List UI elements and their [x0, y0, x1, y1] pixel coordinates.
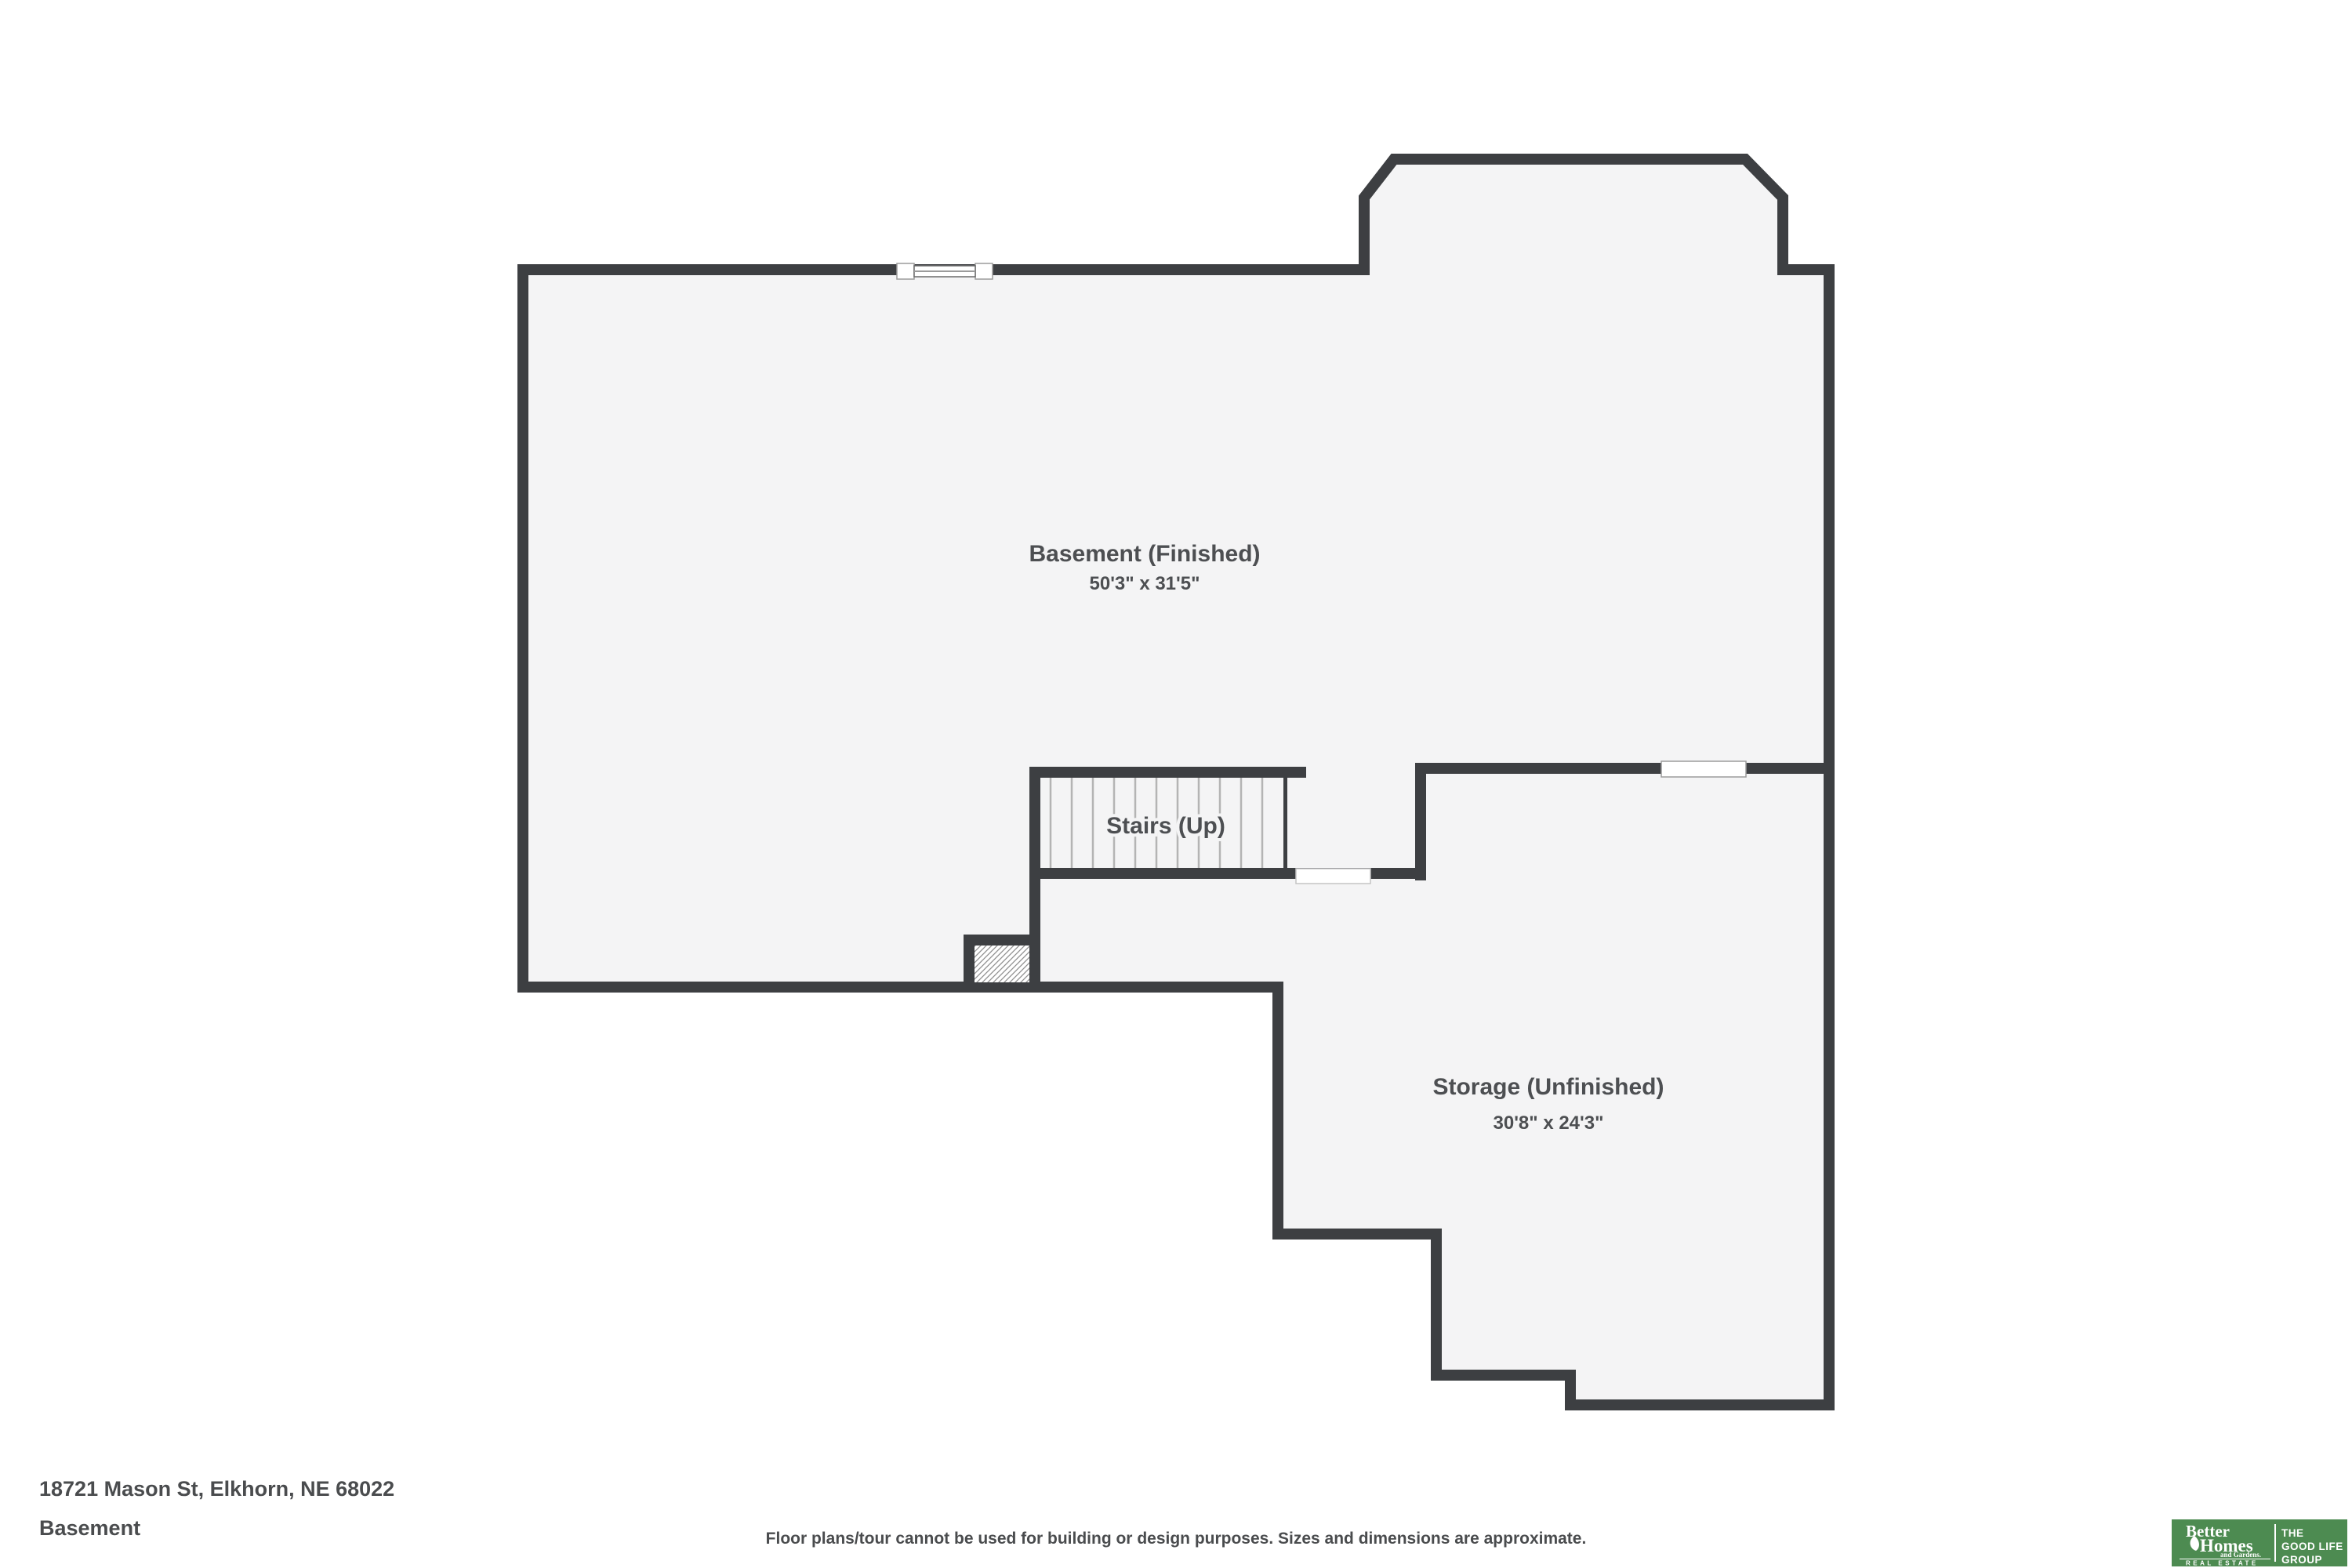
logo-tag-group: GROUP	[2281, 1554, 2322, 1566]
room-dims-storage: 30'8" x 24'3"	[1494, 1112, 1604, 1134]
room-label-storage: Storage (Unfinished)	[1432, 1074, 1664, 1100]
room-label-basement: Basement (Finished)	[1029, 541, 1260, 567]
support-column-top-wall	[964, 935, 1040, 946]
logo-word-and-gardens: and Gardens.	[2220, 1551, 2261, 1559]
logo-word-real-estate: REAL ESTATE	[2186, 1560, 2259, 1567]
room-label-stairs: Stairs (Up)	[1106, 813, 1225, 839]
logo-tag-the: THE	[2281, 1527, 2304, 1539]
door-opening-stairs	[1296, 869, 1370, 884]
logo-tag-good-life: GOOD LIFE	[2281, 1541, 2343, 1552]
window-storage	[1661, 761, 1746, 777]
storage-top-wall	[1415, 763, 1831, 774]
window-top	[897, 263, 993, 279]
storage-divider-wall	[1415, 763, 1426, 880]
room-dims-basement: 50'3" x 31'5"	[1090, 573, 1200, 594]
brand-logo: Better Homes and Gardens. REAL ESTATE TH…	[2172, 1519, 2347, 1567]
floor-name-text: Basement	[39, 1516, 140, 1540]
support-column-left-wall	[964, 935, 975, 993]
floor-plan-page: Basement (Finished) 50'3" x 31'5" Stairs…	[0, 0, 2352, 1568]
stair-landing-edge-line	[1283, 778, 1287, 869]
stairs-left-wall	[1029, 767, 1040, 993]
stairs-top-wall	[1029, 767, 1306, 778]
floor-plan-canvas: Basement (Finished) 50'3" x 31'5" Stairs…	[0, 0, 2352, 1568]
window-top-right-cap	[975, 263, 993, 279]
support-column-hatch	[975, 946, 1029, 982]
window-top-left-cap	[897, 263, 914, 279]
disclaimer-text: Floor plans/tour cannot be used for buil…	[766, 1530, 1587, 1548]
address-text: 18721 Mason St, Elkhorn, NE 68022	[39, 1477, 394, 1501]
